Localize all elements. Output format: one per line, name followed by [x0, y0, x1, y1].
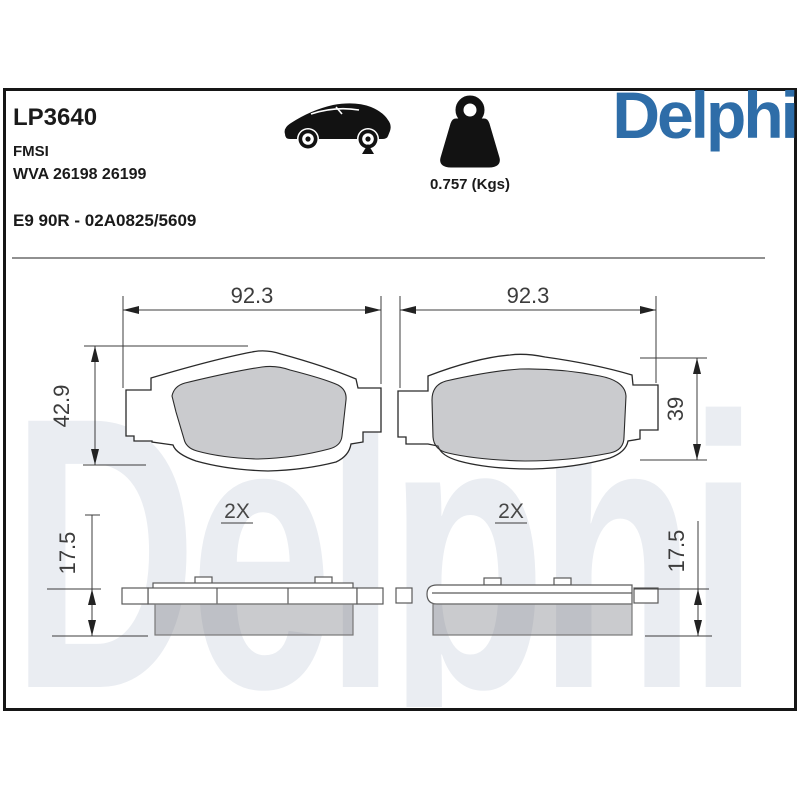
car-rear-axle-icon	[283, 98, 393, 163]
pad-front-view-left	[126, 351, 381, 471]
arrow-down	[88, 620, 96, 636]
car-icon-svg	[283, 98, 393, 158]
friction-left	[172, 366, 346, 459]
fmsi-label: FMSI	[13, 143, 49, 160]
pad-side-view-left	[122, 577, 383, 635]
side-right-ear-left	[396, 588, 412, 603]
weight-kettlebell-icon	[437, 95, 505, 180]
side-right-tab1	[484, 578, 501, 585]
friction-right	[432, 369, 626, 461]
side-left-ear-left	[122, 588, 148, 604]
side-right-tab2	[554, 578, 571, 585]
weight-handle	[460, 100, 481, 121]
weight-icon-svg	[437, 95, 505, 175]
arrow-left	[400, 306, 416, 314]
side-right-ear-right	[634, 588, 658, 603]
arrow-right	[365, 306, 381, 314]
side-right-backplate	[427, 585, 632, 604]
arrow-left	[123, 306, 139, 314]
arrow-down	[91, 449, 99, 465]
dim-pad2-height: 39	[663, 397, 688, 421]
side-left-ear-right	[357, 588, 383, 604]
pad-side-view-right	[396, 578, 658, 635]
arrow-down	[693, 444, 701, 460]
arrow-up	[91, 346, 99, 362]
qty-pad1: 2X	[224, 500, 250, 523]
arrow-up	[693, 358, 701, 374]
front-wheel-hub	[305, 136, 310, 141]
brake-pad-datasheet: { "header": { "part_number": "LP3640", "…	[0, 0, 800, 800]
arrow-up	[88, 589, 96, 605]
side-right-friction	[433, 604, 632, 635]
arrow-right	[640, 306, 656, 314]
dim-pad1-height: 42.9	[49, 385, 74, 428]
dim-pad2-thickness: 17.5	[664, 530, 689, 573]
pad-front-view-right	[398, 354, 658, 469]
qty-pad2: 2X	[498, 500, 524, 523]
wva-numbers: WVA 26198 26199	[13, 166, 146, 184]
dim-pad2-width: 92.3	[507, 283, 550, 308]
dim-pad1-width: 92.3	[231, 283, 274, 308]
side-left-friction	[155, 604, 353, 635]
side-left-backplate	[148, 588, 357, 604]
part-number: LP3640	[13, 104, 97, 132]
approval-number: E9 90R - 02A0825/5609	[13, 211, 196, 231]
delphi-logo: Delphi	[612, 82, 796, 148]
arrow-down	[694, 620, 702, 636]
header-divider	[12, 257, 765, 259]
dim-pad1-thickness: 17.5	[55, 532, 80, 575]
rear-wheel-hub	[365, 136, 370, 141]
weight-body	[443, 121, 498, 165]
arrow-up	[694, 589, 702, 605]
